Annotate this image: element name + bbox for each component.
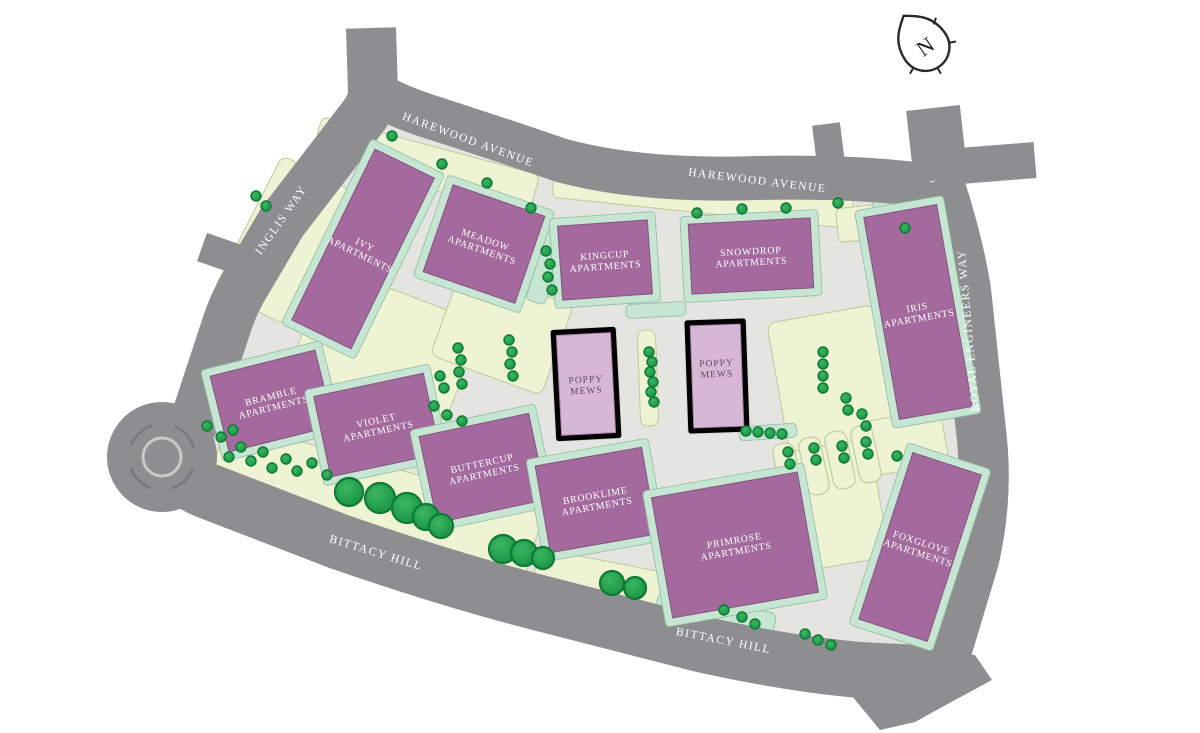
tree-icon [645, 367, 655, 377]
tree-icon [900, 223, 910, 233]
tree-icon [750, 619, 760, 629]
tree-icon [644, 347, 654, 357]
tree-icon [216, 432, 226, 442]
tree-icon [439, 383, 449, 393]
tree-icon [246, 456, 256, 466]
tree-icon [545, 259, 555, 269]
tree-icon [765, 428, 775, 438]
tree-icon [818, 383, 828, 393]
tree-icon [826, 640, 836, 650]
tree-icon [818, 359, 828, 369]
tree-icon [457, 379, 467, 389]
building-label: POPPYMEWS [568, 375, 604, 398]
tree-icon [783, 447, 793, 457]
roundabout-island [143, 438, 181, 476]
tree-icon [753, 427, 763, 437]
tree-icon [841, 393, 851, 403]
tree-icon [228, 425, 238, 435]
tree-icon [741, 426, 751, 436]
mint-strip [626, 301, 687, 318]
building-label: SNOWDROPAPARTMENTS [715, 245, 788, 271]
tree-icon [777, 429, 787, 439]
tree-icon [281, 454, 291, 464]
tree-icon [833, 198, 843, 208]
tree-icon [261, 201, 271, 211]
tree-icon [543, 272, 553, 282]
tree-icon [429, 514, 453, 538]
tree-icon [861, 437, 871, 447]
tree-icon [800, 629, 810, 639]
site-plan-page: IVYAPARTMENTS MEADOWAPARTMENTS KINGCUPAP… [0, 0, 1200, 733]
tree-icon [236, 442, 246, 452]
tree-icon [863, 449, 873, 459]
tree-icon [837, 441, 847, 451]
building-label: POPPYMEWS [699, 358, 734, 380]
tree-icon [442, 410, 452, 420]
road-stub-west [202, 247, 245, 262]
tree-icon [456, 355, 466, 365]
building-kingcup-apartments: KINGCUPAPARTMENTS [549, 211, 661, 308]
tree-icon [457, 416, 467, 426]
tree-icon [719, 605, 729, 615]
tree-icon [387, 131, 397, 141]
tree-icon [454, 367, 464, 377]
tree-icon [335, 478, 363, 506]
tree-icon [365, 483, 395, 513]
roundabout [107, 402, 217, 512]
tree-icon [843, 405, 853, 415]
tree-icon [785, 459, 795, 469]
tree-icon [809, 443, 819, 453]
tree-icon [646, 387, 656, 397]
building-poppy-mews-west: POPPYMEWS [550, 326, 622, 441]
tree-icon [307, 458, 317, 468]
tree-icon [892, 451, 902, 461]
tree-icon [508, 371, 518, 381]
tree-icon [861, 421, 871, 431]
tree-icon [857, 409, 867, 419]
tree-icon [202, 421, 212, 431]
tree-icon [292, 466, 302, 476]
building-snowdrop-apartments: SNOWDROPAPARTMENTS [680, 209, 822, 302]
tree-icon [322, 470, 332, 480]
tree-icon [429, 401, 439, 411]
tree-icon [600, 571, 624, 595]
road-branch-east [935, 160, 1035, 168]
tree-icon [811, 455, 821, 465]
masterplan-map: IVYAPARTMENTS MEADOWAPARTMENTS KINGCUPAP… [0, 0, 1200, 733]
tree-icon [532, 547, 554, 569]
tree-icon [453, 343, 463, 353]
tree-icon [435, 371, 445, 381]
tree-icon [267, 463, 277, 473]
tree-icon [818, 347, 828, 357]
tree-icon [224, 452, 234, 462]
tree-icon [547, 285, 557, 295]
tree-icon [813, 635, 823, 645]
road-stub-north-1 [826, 124, 832, 172]
tree-icon [649, 397, 659, 407]
tree-icon [437, 159, 447, 169]
tree-icon [692, 208, 702, 218]
tree-icon [505, 359, 515, 369]
tree-icon [737, 204, 747, 214]
tree-icon [258, 447, 268, 457]
tree-icon [251, 191, 261, 201]
tree-icon [648, 377, 658, 387]
building-poppy-mews-east: POPPYMEWS [684, 318, 750, 434]
tree-icon [647, 357, 657, 367]
tree-icon [504, 335, 514, 345]
tree-icon [818, 371, 828, 381]
tree-icon [507, 347, 517, 357]
tree-icon [624, 577, 646, 599]
tree-icon [541, 246, 551, 256]
building-primrose-apartments: PRIMROSEAPARTMENTS [642, 463, 827, 627]
north-compass-icon: N [881, 0, 967, 88]
tree-icon [781, 203, 791, 213]
tree-icon [737, 612, 747, 622]
tree-icon [839, 453, 849, 463]
tree-icon [526, 203, 536, 213]
tree-icon [482, 178, 492, 188]
